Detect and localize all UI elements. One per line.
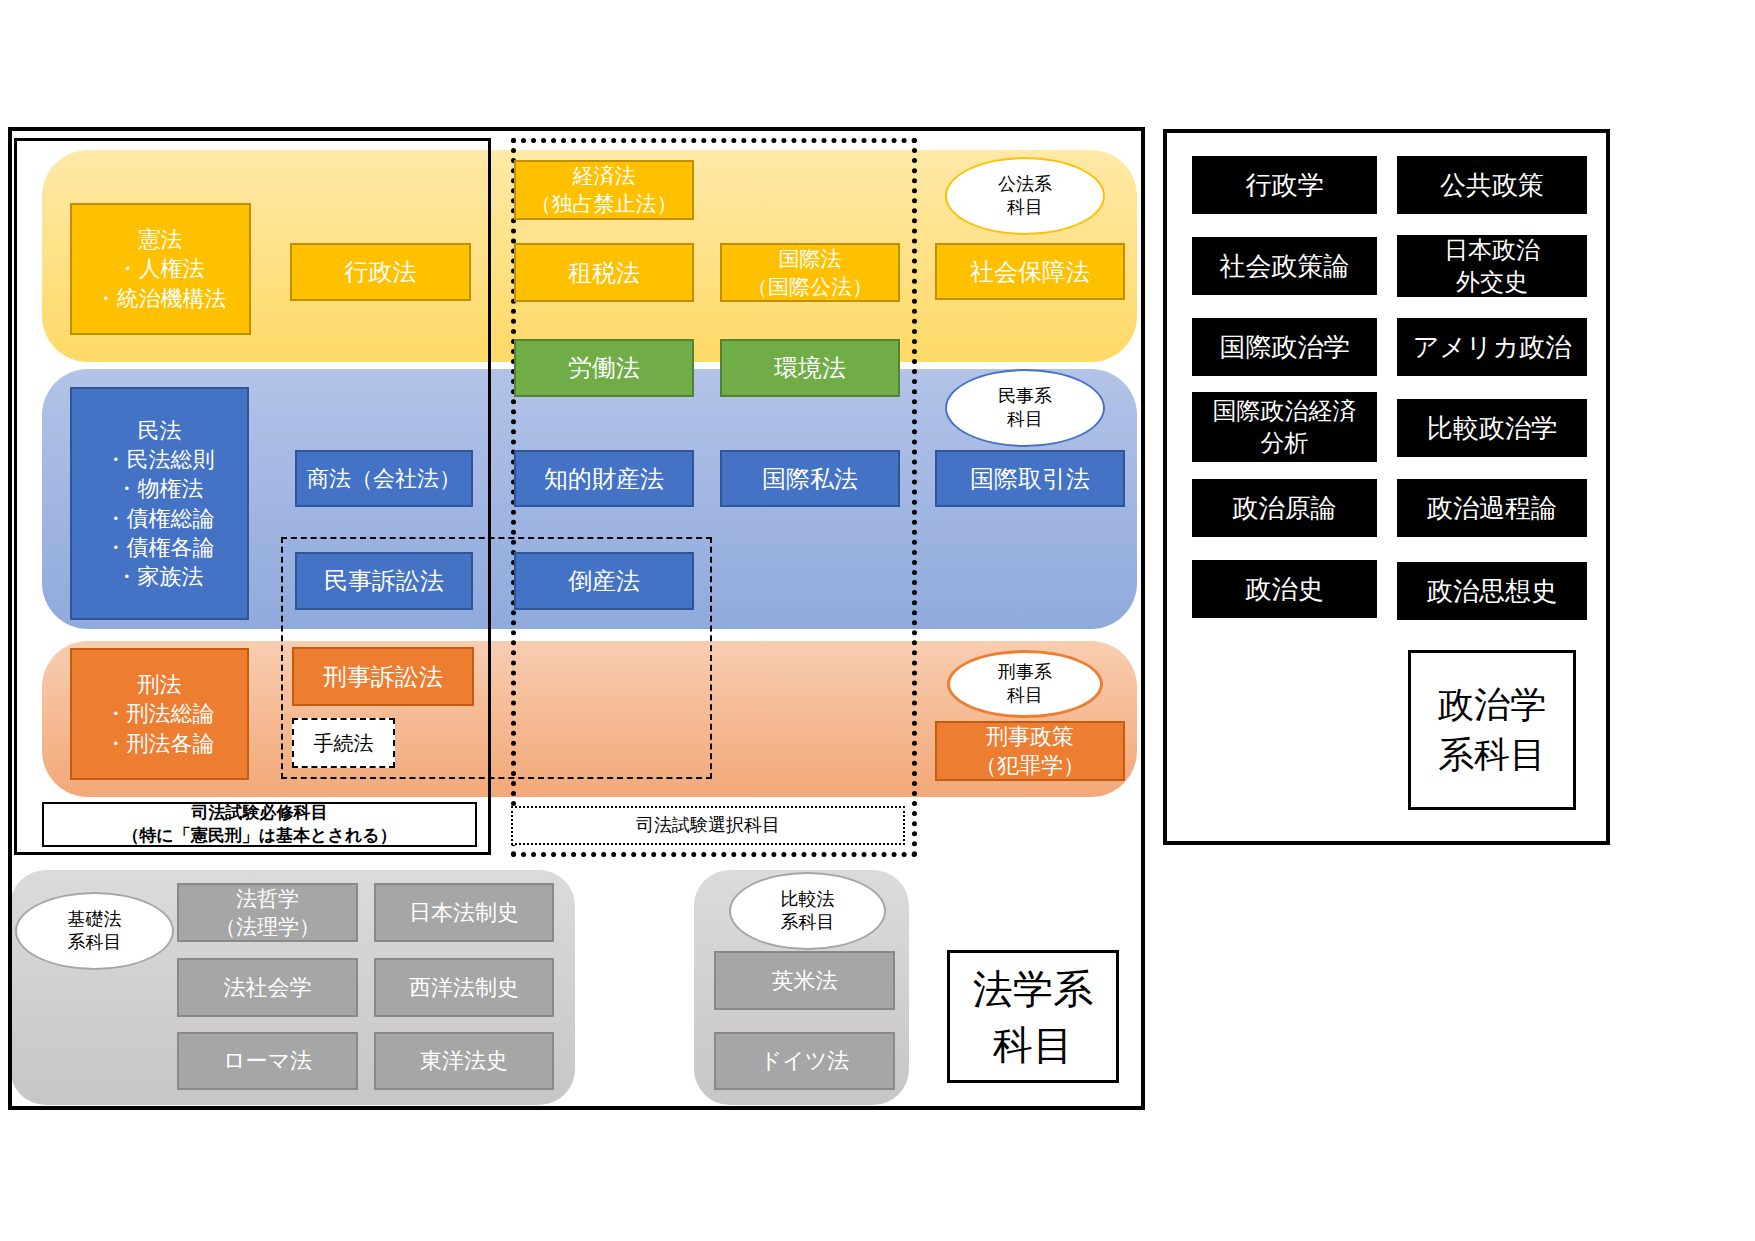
box-rodoho-label: 労働法	[568, 352, 640, 384]
box-ho-shakaigaku-label: 法社会学	[224, 973, 312, 1002]
bar-exam-required-line1: 司法試験必修科目	[192, 802, 328, 825]
box-kokyo-seisaku-label: 公共政策	[1440, 168, 1544, 202]
box-hikaku-seijigaku: 比較政治学	[1397, 399, 1587, 457]
box-chiteki-zaisanho: 知的財産法	[514, 450, 694, 507]
box-keiho-line2: ・刑法総論	[105, 699, 215, 728]
oval-criminal-law-category: 刑事系 科目	[947, 650, 1103, 718]
oval-public-law-category: 公法系 科目	[945, 157, 1105, 235]
box-nihon-seiji-gaikoshi-line1: 日本政治	[1444, 234, 1540, 266]
box-doitsu-ho-label: ドイツ法	[760, 1046, 850, 1075]
oval-comparative-line2: 系科目	[781, 911, 835, 934]
box-kokyo-seisaku: 公共政策	[1397, 156, 1587, 214]
box-kokusai-torihikiho-label: 国際取引法	[970, 463, 1090, 495]
box-kokusaiho: 国際法 （国際公法）	[720, 243, 900, 302]
box-seiji-kateiron-label: 政治過程論	[1427, 491, 1557, 525]
box-keiji-soshoho-label: 刑事訴訟法	[323, 661, 443, 693]
oval-criminal-line2: 科目	[1007, 684, 1043, 707]
box-kankyoho: 環境法	[720, 339, 900, 397]
box-minpo-line2: ・民法総則	[105, 445, 215, 474]
oval-civil-line2: 科目	[1007, 408, 1043, 431]
bar-exam-elective-label: 司法試験選択科目	[511, 806, 905, 845]
bar-exam-elective-text: 司法試験選択科目	[636, 813, 780, 837]
oval-comparative-law-category: 比較法 系科目	[729, 872, 886, 950]
box-kokusai-seiji-keizai-bunseki: 国際政治経済 分析	[1192, 392, 1377, 462]
box-kankyoho-label: 環境法	[774, 352, 846, 384]
box-kenpo-line3: ・統治機構法	[95, 284, 227, 313]
box-rodoho: 労働法	[514, 339, 694, 397]
box-eibei-ho-label: 英米法	[772, 966, 838, 995]
box-gyoseigaku-label: 行政学	[1246, 168, 1324, 202]
oval-basic-line1: 基礎法	[68, 908, 122, 931]
box-kokusai-seiji-keizai-bunseki-line1: 国際政治経済	[1213, 395, 1357, 427]
box-eibei-ho: 英米法	[714, 951, 895, 1010]
box-hotetsugaku-line2: （法理学）	[215, 913, 320, 941]
box-minpo: 民法 ・民法総則 ・物権法 ・債権総論 ・債権各論 ・家族法	[70, 387, 249, 620]
bar-exam-required-label: 司法試験必修科目 （特に「憲民刑」は基本とされる）	[42, 802, 477, 847]
subject-map-diagram: 憲法 ・人権法 ・統治機構法 行政法 経済法 （独占禁止法） 租税法 国際法 （…	[0, 0, 1755, 1241]
box-minpo-line4: ・債権総論	[105, 504, 215, 533]
box-america-seiji-label: アメリカ政治	[1413, 330, 1571, 364]
box-kokusaiho-line1: 国際法	[779, 245, 842, 273]
box-keiji-soshoho: 刑事訴訟法	[292, 647, 474, 706]
box-tetsuzukiho: 手続法	[292, 718, 395, 768]
box-ho-shakaigaku: 法社会学	[177, 958, 358, 1017]
box-gyoseiho-label: 行政法	[345, 256, 417, 288]
box-kokusai-shiho-label: 国際私法	[762, 463, 858, 495]
law-panel-title: 法学系 科目	[947, 950, 1119, 1083]
oval-criminal-line1: 刑事系	[998, 661, 1052, 684]
box-keizaiho-line1: 経済法	[573, 162, 636, 190]
box-hikaku-seijigaku-label: 比較政治学	[1427, 411, 1557, 445]
bar-exam-required-line2: （特に「憲民刑」は基本とされる）	[122, 825, 396, 848]
politics-panel-title-line1: 政治学	[1438, 680, 1546, 730]
box-toyo-hoshi: 東洋法史	[374, 1032, 554, 1090]
box-doitsu-ho: ドイツ法	[714, 1032, 895, 1090]
box-kenpo-line1: 憲法	[139, 225, 183, 254]
oval-civil-law-category: 民事系 科目	[945, 369, 1105, 447]
box-minpo-line6: ・家族法	[116, 562, 204, 591]
box-tosanho: 倒産法	[514, 552, 694, 610]
box-kenpo: 憲法 ・人権法 ・統治機構法	[70, 203, 251, 335]
oval-civil-line1: 民事系	[998, 385, 1052, 408]
box-seijishi-label: 政治史	[1246, 572, 1324, 606]
box-shakai-hoshoho: 社会保障法	[935, 243, 1125, 300]
box-gyoseigaku: 行政学	[1192, 156, 1377, 214]
box-shakai-seisakuron: 社会政策論	[1192, 237, 1377, 295]
box-seiji-genron: 政治原論	[1192, 479, 1377, 537]
box-tetsuzukiho-label: 手続法	[314, 730, 374, 756]
box-minpo-line3: ・物権法	[116, 474, 204, 503]
box-seiji-kateiron: 政治過程論	[1397, 479, 1587, 537]
box-america-seiji: アメリカ政治	[1397, 318, 1587, 376]
oval-public-line1: 公法系	[998, 173, 1052, 196]
box-seiji-shisoshi-label: 政治思想史	[1427, 574, 1557, 608]
box-keiji-seisaku-line1: 刑事政策	[986, 722, 1074, 751]
box-minji-soshoho: 民事訴訟法	[295, 552, 473, 610]
box-keiho-line3: ・刑法各論	[105, 729, 215, 758]
box-kokusai-torihikiho: 国際取引法	[935, 450, 1125, 507]
box-shoho: 商法（会社法）	[295, 450, 473, 507]
box-tosanho-label: 倒産法	[568, 565, 640, 597]
box-toyo-hoshi-label: 東洋法史	[420, 1046, 508, 1075]
box-nihon-hoseishi-label: 日本法制史	[409, 898, 519, 927]
oval-comparative-line1: 比較法	[781, 888, 835, 911]
box-seiyo-hoseishi-label: 西洋法制史	[409, 973, 519, 1002]
box-nihon-seiji-gaikoshi-line2: 外交史	[1456, 266, 1528, 298]
box-minji-soshoho-label: 民事訴訟法	[324, 565, 444, 597]
box-keizaiho: 経済法 （独占禁止法）	[514, 160, 694, 220]
box-nihon-hoseishi: 日本法制史	[374, 883, 554, 942]
box-shakai-seisakuron-label: 社会政策論	[1220, 249, 1350, 283]
law-panel-title-line2: 科目	[993, 1017, 1073, 1073]
box-nihon-seiji-gaikoshi: 日本政治 外交史	[1397, 235, 1587, 297]
box-seijishi: 政治史	[1192, 560, 1377, 618]
box-gyoseiho: 行政法	[290, 243, 471, 301]
box-seiyo-hoseishi: 西洋法制史	[374, 958, 554, 1017]
box-kokusai-shiho: 国際私法	[720, 450, 900, 507]
law-panel-title-line1: 法学系	[973, 961, 1093, 1017]
box-kokusai-seijigaku: 国際政治学	[1192, 318, 1377, 376]
box-minpo-line1: 民法	[138, 416, 182, 445]
box-keiho-line1: 刑法	[138, 670, 182, 699]
box-kokusaiho-line2: （国際公法）	[747, 273, 873, 301]
politics-panel-title: 政治学 系科目	[1408, 650, 1576, 810]
box-sozeiho: 租税法	[514, 243, 694, 302]
box-roma-ho: ローマ法	[177, 1032, 358, 1090]
box-keiji-seisaku: 刑事政策 （犯罪学）	[935, 721, 1125, 781]
box-keizaiho-line2: （独占禁止法）	[531, 190, 678, 218]
box-hotetsugaku-line1: 法哲学	[236, 885, 299, 913]
box-seiji-genron-label: 政治原論	[1233, 491, 1337, 525]
box-shoho-label: 商法（会社法）	[307, 464, 461, 493]
politics-panel-title-line2: 系科目	[1438, 730, 1546, 780]
box-seiji-shisoshi: 政治思想史	[1397, 562, 1587, 620]
oval-public-line2: 科目	[1007, 196, 1043, 219]
box-kenpo-line2: ・人権法	[117, 254, 205, 283]
oval-basic-law-category: 基礎法 系科目	[15, 892, 174, 970]
oval-basic-line2: 系科目	[68, 931, 122, 954]
box-kokusai-seijigaku-label: 国際政治学	[1220, 330, 1350, 364]
box-keiji-seisaku-line2: （犯罪学）	[975, 751, 1085, 780]
box-kokusai-seiji-keizai-bunseki-line2: 分析	[1261, 427, 1309, 459]
box-sozeiho-label: 租税法	[568, 257, 640, 289]
box-minpo-line5: ・債権各論	[105, 533, 215, 562]
box-chiteki-zaisanho-label: 知的財産法	[544, 463, 664, 495]
box-keiho: 刑法 ・刑法総論 ・刑法各論	[70, 648, 249, 780]
box-hotetsugaku: 法哲学 （法理学）	[177, 883, 358, 942]
box-roma-ho-label: ローマ法	[223, 1046, 312, 1075]
box-shakai-hoshoho-label: 社会保障法	[970, 256, 1090, 288]
